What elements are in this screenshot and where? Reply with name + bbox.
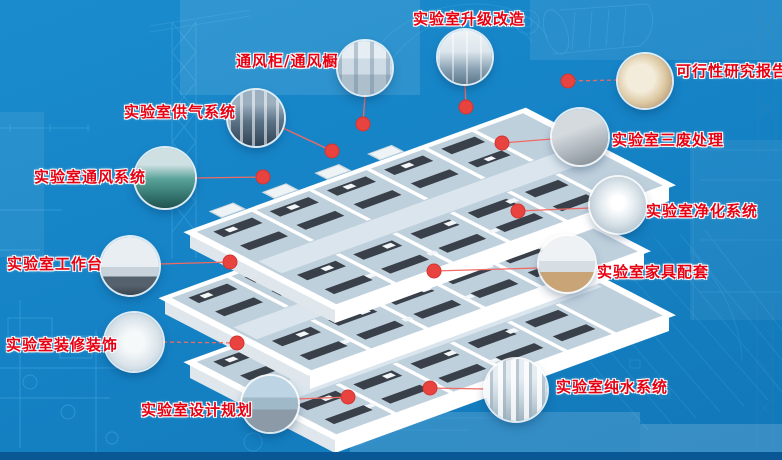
photo-gas-supply[interactable] — [228, 90, 284, 146]
label-upgrade[interactable]: 实验室升级改造 — [413, 8, 525, 29]
label-purification[interactable]: 实验室净化系统 — [646, 200, 758, 221]
label-design-planning[interactable]: 实验室设计规划 — [141, 399, 253, 420]
photo-upgrade[interactable] — [438, 30, 492, 84]
label-furniture[interactable]: 实验室家具配套 — [597, 261, 709, 282]
label-decoration[interactable]: 实验室装修装饰 — [6, 334, 118, 355]
photo-workbench[interactable] — [101, 237, 159, 295]
label-fume-hood[interactable]: 通风柜/通风橱 — [236, 50, 338, 71]
photo-feasibility[interactable] — [618, 54, 672, 108]
label-pure-water[interactable]: 实验室纯水系统 — [556, 376, 668, 397]
photo-waste-treatment[interactable] — [552, 109, 608, 165]
photo-furniture[interactable] — [539, 236, 595, 292]
label-feasibility[interactable]: 可行性研究报告 — [676, 60, 782, 81]
label-gas-supply[interactable]: 实验室供气系统 — [124, 101, 236, 122]
label-waste-treatment[interactable]: 实验室三废处理 — [612, 129, 724, 150]
photo-fume-hood[interactable] — [338, 41, 392, 95]
label-ventilation[interactable]: 实验室通风系统 — [34, 166, 146, 187]
bottom-bar — [0, 452, 782, 460]
photo-purification[interactable] — [590, 177, 646, 233]
infographic-canvas: 实验室升级改造 通风柜/通风橱 可行性研究报告 实验室供气系统 实验室三废处理 … — [0, 0, 782, 460]
photo-pure-water[interactable] — [485, 359, 547, 421]
label-workbench[interactable]: 实验室工作台 — [7, 253, 103, 274]
